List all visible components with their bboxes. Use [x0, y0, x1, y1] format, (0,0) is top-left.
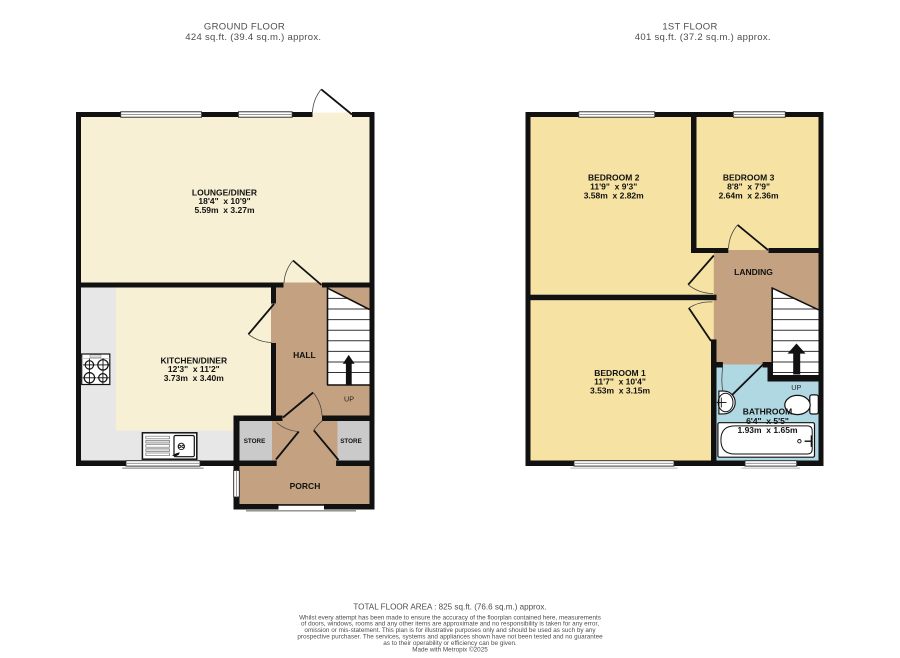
svg-text:401 sq.ft. (37.2 sq.m.) approx: 401 sq.ft. (37.2 sq.m.) approx. — [635, 32, 771, 43]
svg-text:424 sq.ft. (39.4 sq.m.) approx: 424 sq.ft. (39.4 sq.m.) approx. — [185, 32, 321, 43]
svg-text:HALL: HALL — [293, 350, 316, 360]
svg-text:1.93m x 1.65m: 1.93m x 1.65m — [737, 425, 797, 435]
svg-text:2.64m x 2.36m: 2.64m x 2.36m — [719, 190, 779, 200]
svg-text:STORE: STORE — [244, 438, 266, 445]
svg-text:Made with Metropix ©2025: Made with Metropix ©2025 — [412, 645, 488, 653]
svg-text:3.58m x 2.82m: 3.58m x 2.82m — [584, 190, 644, 200]
svg-text:UP: UP — [791, 383, 801, 392]
svg-text:5.59m x 3.27m: 5.59m x 3.27m — [194, 205, 254, 215]
svg-text:STORE: STORE — [340, 438, 362, 445]
svg-text:3.53m x 3.15m: 3.53m x 3.15m — [590, 385, 650, 395]
svg-text:3.73m x 3.40m: 3.73m x 3.40m — [164, 373, 224, 383]
svg-text:LANDING: LANDING — [734, 267, 773, 277]
svg-text:PORCH: PORCH — [290, 481, 321, 491]
svg-text:UP: UP — [344, 395, 354, 404]
svg-text:TOTAL FLOOR AREA : 825 sq.ft.: TOTAL FLOOR AREA : 825 sq.ft. (76.6 sq.m… — [353, 603, 546, 612]
